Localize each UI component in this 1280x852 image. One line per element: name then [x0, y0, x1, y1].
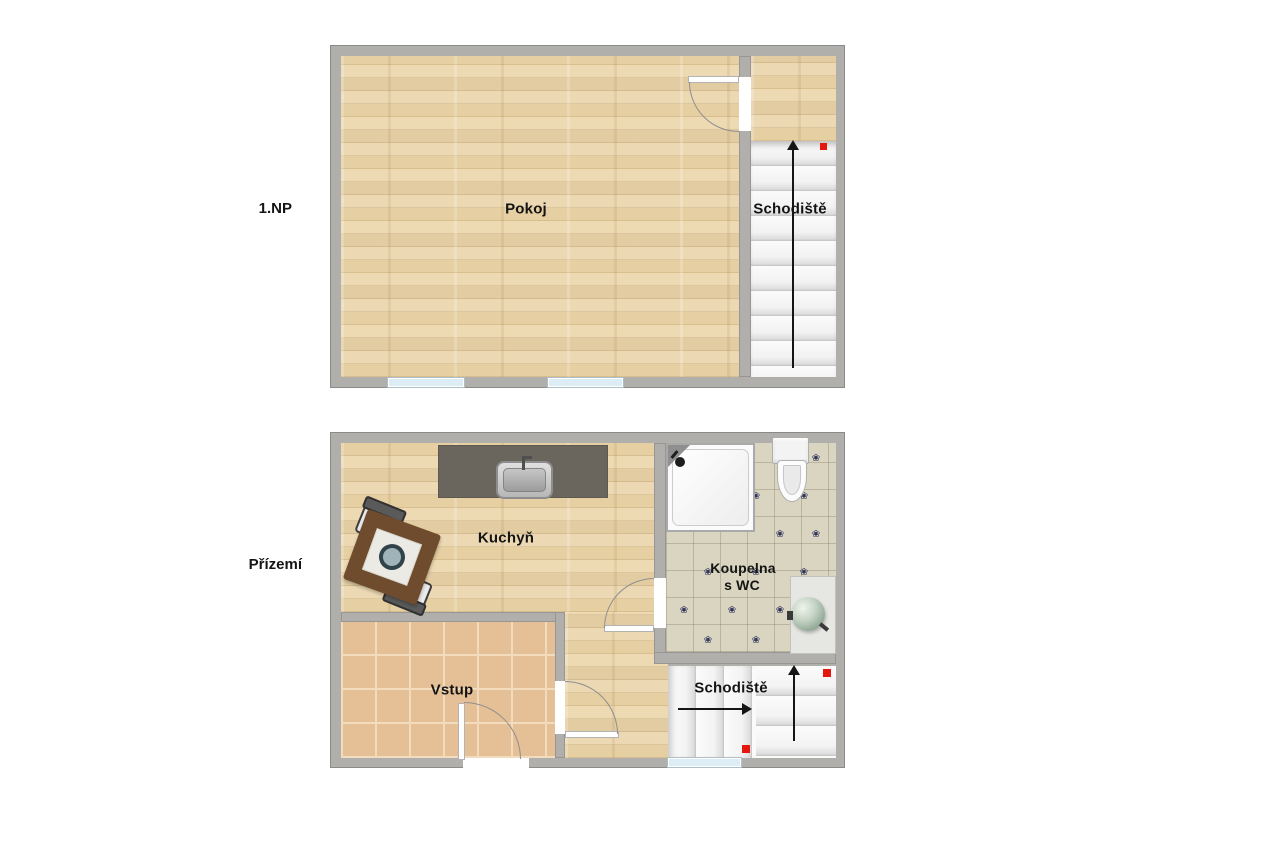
stairs-arrow-head-ground-v — [788, 665, 800, 675]
room-label-koupelna-line2: s WC — [724, 577, 760, 593]
washbasin-tap-icon — [787, 611, 793, 620]
window-staircase-ground — [668, 758, 741, 767]
window-pokoj-left — [388, 378, 464, 387]
kitchen-sink — [496, 461, 553, 499]
door-opening-bathroom — [654, 578, 666, 628]
tile-flower-ornament: ❀ — [812, 530, 820, 540]
room-label-koupelna-line1: Koupelna — [710, 560, 775, 576]
floor-label-ground: Přízemí — [182, 556, 302, 573]
kitchen-sink-basin — [503, 468, 546, 492]
tile-flower-ornament: ❀ — [776, 530, 784, 540]
stairs-arrow-head-upper — [787, 140, 799, 150]
shower-head-icon — [675, 457, 685, 467]
floor-label-first: 1.NP — [172, 200, 292, 217]
window-pokoj-right — [548, 378, 623, 387]
marker-red-ground-bottom — [742, 745, 750, 753]
tile-flower-ornament: ❀ — [812, 454, 820, 464]
room-label-kuchyn: Kuchyň — [478, 530, 534, 547]
marker-red-ground-top — [823, 669, 831, 677]
room-label-pokoj: Pokoj — [505, 201, 547, 218]
door-opening-pokoj — [739, 77, 751, 131]
door-opening-entry-hall — [555, 681, 565, 734]
toilet-bowl-inner — [783, 465, 801, 495]
floor-plan-ground-floor: ❀❀❀❀❀❀❀❀❀❀❀❀❀❀ — [330, 432, 845, 768]
floor-plan-first-floor: Pokoj Schodiště — [330, 45, 845, 388]
stairs-direction-arrow-ground-h — [678, 708, 744, 710]
stairs-direction-arrow-upper — [792, 148, 794, 368]
room-label-vstup: Vstup — [431, 682, 474, 699]
marker-red-upper — [820, 143, 827, 150]
wall-bathroom-left — [654, 443, 666, 664]
tile-flower-ornament: ❀ — [704, 636, 712, 646]
tile-flower-ornament: ❀ — [752, 636, 760, 646]
tile-flower-ornament: ❀ — [728, 606, 736, 616]
staircase-landing-floor — [751, 56, 836, 141]
room-label-schodiste-upper: Schodiště — [753, 201, 826, 218]
kitchen-faucet-spout — [522, 456, 532, 459]
tile-flower-ornament: ❀ — [776, 606, 784, 616]
wall-entry-top — [341, 612, 565, 622]
door-opening-entrance — [463, 758, 529, 768]
stairs-arrow-head-ground-h — [742, 703, 752, 715]
shower — [666, 443, 755, 532]
tile-flower-ornament: ❀ — [680, 606, 688, 616]
stairs-direction-arrow-ground-v — [793, 673, 795, 741]
room-label-schodiste-ground: Schodiště — [694, 680, 767, 697]
staircase-steps-ground-turn — [756, 666, 836, 758]
